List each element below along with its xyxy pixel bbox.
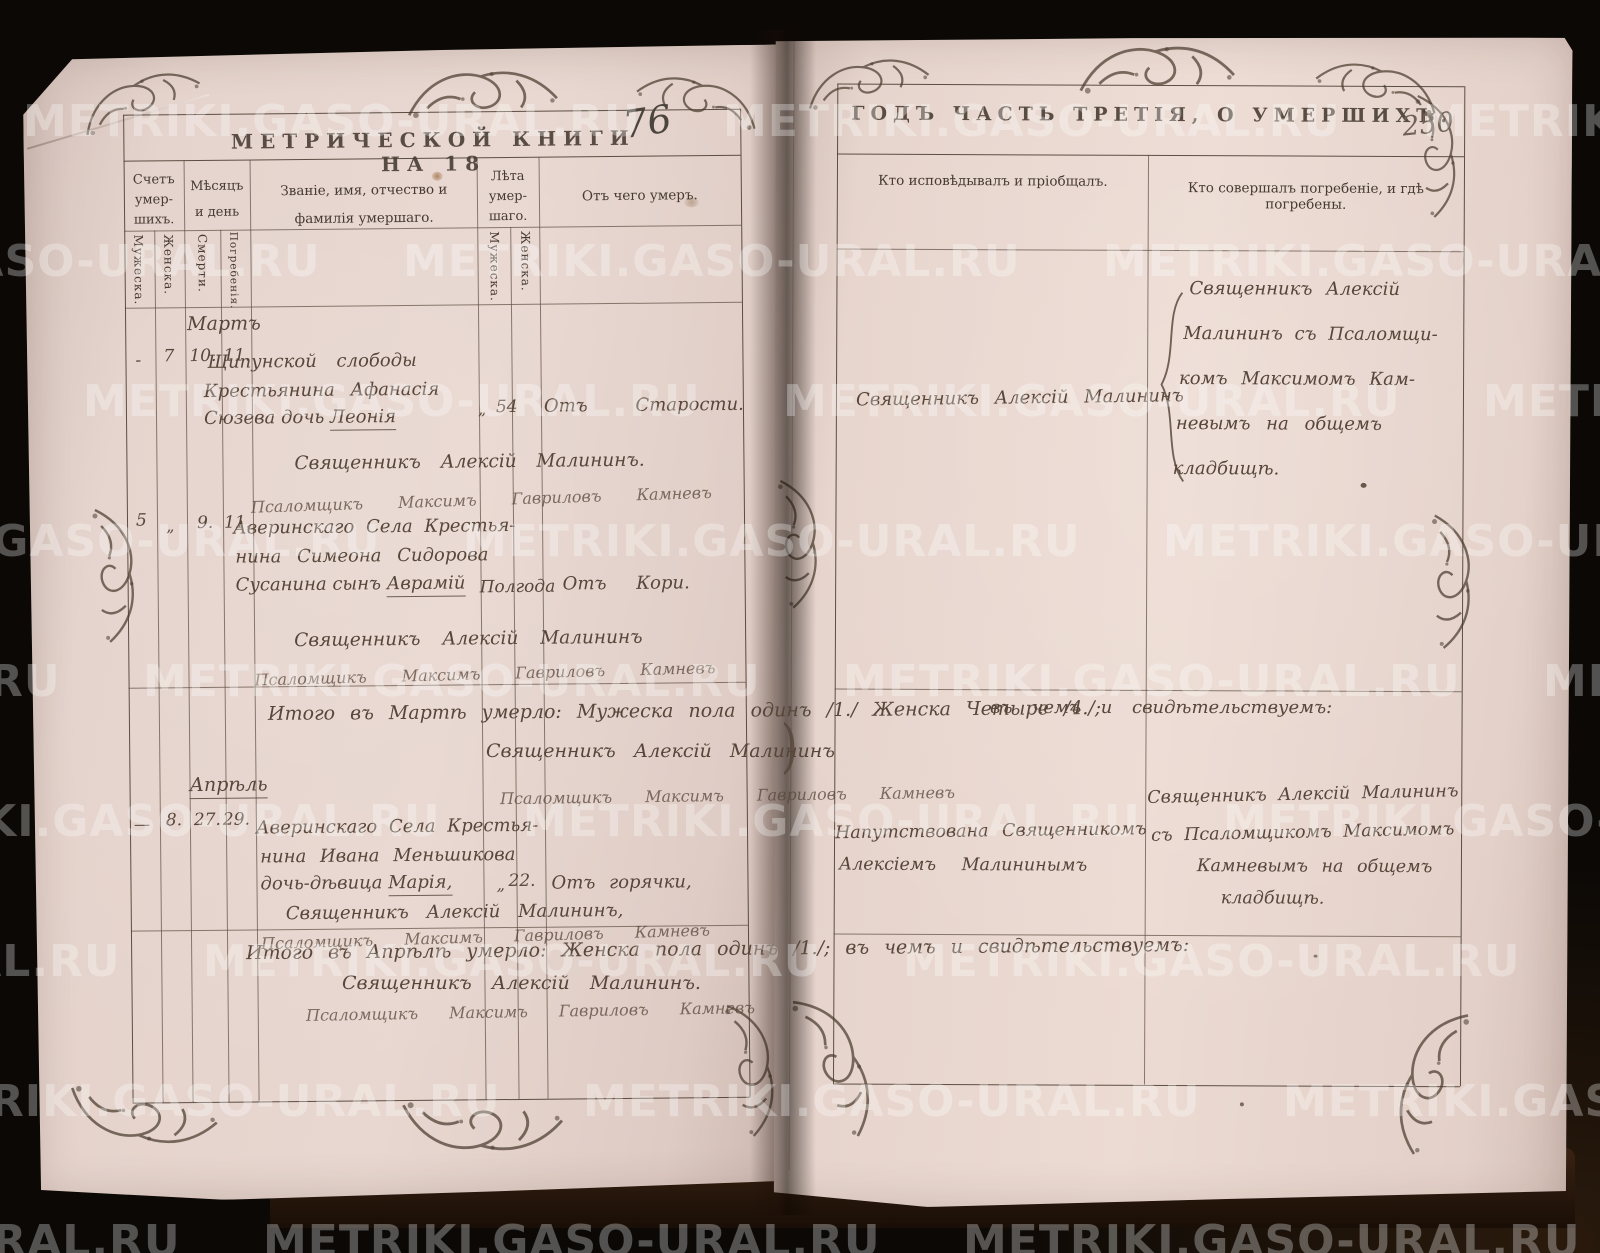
top-center-flourish-icon [393,64,574,122]
entry-day-death: 9. [197,513,213,533]
entry-text-line: Щипунской слободы [207,350,416,373]
paper-stain [1314,955,1318,958]
entry-text-line: Аверинскаго Села Крестья- [256,815,539,839]
page-gutter-shadow [750,30,816,1215]
page-title: ГОДЪ ЧАСТЬ ТРЕТІЯ, О УМЕРШИХЪ. [847,103,1457,128]
watermark-text: METRIKI.GASO-URAL.RU [0,1216,181,1253]
bottom-flourish-icon [373,1096,594,1158]
entry-text: Сусанина сынъ [236,573,387,595]
table-line [1144,155,1149,1085]
entry-age-ditto: „ [496,875,504,894]
subheader-count-female: Женска. [161,234,176,306]
entry-text-line: дочь-дѣвица Марія, [260,872,452,895]
edge-flourish-icon [89,501,140,651]
subheader-age-female: Женска. [518,231,533,303]
entry-age-inline: Полгода [480,577,556,598]
entry-age-ditto: „ [478,399,486,418]
column-header-cause: Отъ чего умеръ. [541,187,739,205]
table-line [837,249,1464,253]
burial-note-line: Малининъ съ Псаломщи- [1183,323,1438,345]
table-line [184,160,194,1102]
table-line [250,159,260,1101]
corner-flourish-icon [1380,997,1476,1166]
priest-signature: Священникъ Алексій Малининъ, [286,900,624,924]
column-header-date: Мѣсяцъ и день [185,174,249,227]
watermark-text: METRIKI.GASO-URAL.RU [0,376,1,427]
entry-age-female: 22. [508,871,535,891]
subheader-death-day: Смерти. [195,234,210,306]
entry-text-line: нина Ивана Меньшикова [260,844,515,867]
priest-signature: Священникъ Алексій Малининъ [294,627,643,651]
entry-cause: Отъ Кори. [563,572,690,594]
page-number: 250 [1401,107,1455,143]
entry-text-line: Аверинскаго Села Крестья- [233,515,516,539]
month-label-april: Апрѣль [189,773,267,799]
table-line [740,109,750,1097]
priest-signature: Священникъ Алексій Малининъ. [294,450,644,474]
edge-flourish-icon [1423,506,1479,658]
burial-note-line: комъ Максимомъ Кам- [1179,368,1415,390]
column-header-burial: Кто совершалъ погребеніе, и гдѣ погребен… [1166,180,1446,213]
paper-stain [1361,483,1367,488]
burial-note-line: Священникъ Алексій Малининъ [1147,781,1459,808]
entry-text-line: Сусанина сынъ Аврамій [236,572,466,595]
entry-cause: Отъ Старости. [544,394,744,417]
column-header-confession: Кто исповѣдывалъ и пріобщалъ. [852,173,1134,190]
entry-cause: Отъ горячки, [551,871,691,893]
burial-note-line: Камневымъ на общемъ [1197,856,1432,877]
column-header-age: Лѣта умер- шаго. [478,167,539,228]
table-line [837,154,1464,158]
confession-note-line: Алексіемъ Малининымъ [839,855,1087,876]
table-line [835,689,1462,693]
corner-flourish-icon [60,1080,226,1156]
column-header-name: Званіе, имя, отчество и фамилія умершаго… [263,175,466,234]
page-title: МЕТРИЧЕСКОЙ КНИГИ НА 18 [228,126,638,178]
entry-count-female: „ [166,516,174,535]
entry-text: Сюзева дочь [204,407,330,429]
subheader-count-male: Мужеска. [131,235,146,307]
psalmist-signature: Псаломщикъ Максимъ Гавриловъ Камневъ [261,920,710,953]
entry-text-line: Крестьянина Афанасія [204,379,440,402]
entry-day-death: 27. [194,810,221,830]
handwritten-year: 76 [620,96,674,147]
entry-count-male: 5 [136,511,147,531]
subheader-burial-day: Погребенія. [227,232,240,308]
right-page: ГОДЪ ЧАСТЬ ТРЕТІЯ, О УМЕРШИХЪ. 250 Кто и… [767,34,1572,1209]
confession-note-line: Напутствована Священникомъ [835,819,1147,843]
deceased-name: Аврамій [387,572,466,597]
entry-count-female: 7 [163,346,174,366]
table-line [834,934,1461,938]
psalmist-signature: Псаломщикъ Максимъ Гавриловъ Камневъ [251,483,712,517]
column-header-count: Счетъ умер- шихъ. [125,170,184,231]
paper-stain [1240,1102,1244,1106]
archive-photo: МЕТРИЧЕСКОЙ КНИГИ НА 18 76 Счетъ умер- ш… [0,0,1600,1253]
table-line [154,230,163,1102]
entry-count-male: - [135,351,141,371]
burial-note-line: Священникъ Алексій [1189,278,1400,300]
entry-age-female: 54 [496,397,518,417]
table-line [125,302,742,309]
table-line [833,1084,1460,1088]
month-label-march: Мартъ [187,312,261,335]
deceased-name: Марія, [388,872,452,897]
left-page: МЕТРИЧЕСКОЙ КНИГИ НА 18 76 Счетъ умер- ш… [22,44,795,1201]
entry-count-male: — [134,814,150,833]
entry-text: дочь-дѣвица [260,872,388,894]
confession-note: Священникъ Алексій Малининъ [856,385,1184,410]
entry-count-female: 8. [166,810,182,830]
deceased-name: Леонія [330,406,396,431]
top-center-flourish-icon [1062,40,1252,99]
burial-note-line: невымъ на общемъ [1176,413,1382,435]
burial-note-line: съ Псаломщикомъ Максимомъ [1151,819,1455,846]
entry-text-line: нина Симеона Сидорова [235,544,488,567]
burial-note-line: кладбищѣ. [1173,458,1280,479]
entry-day-burial: 29. [223,810,250,830]
burial-note-line: кладбищѣ. [1221,888,1325,908]
entry-text-line: Сюзева дочь Леонія [204,406,396,429]
subheader-age-male: Мужеска. [487,231,502,303]
